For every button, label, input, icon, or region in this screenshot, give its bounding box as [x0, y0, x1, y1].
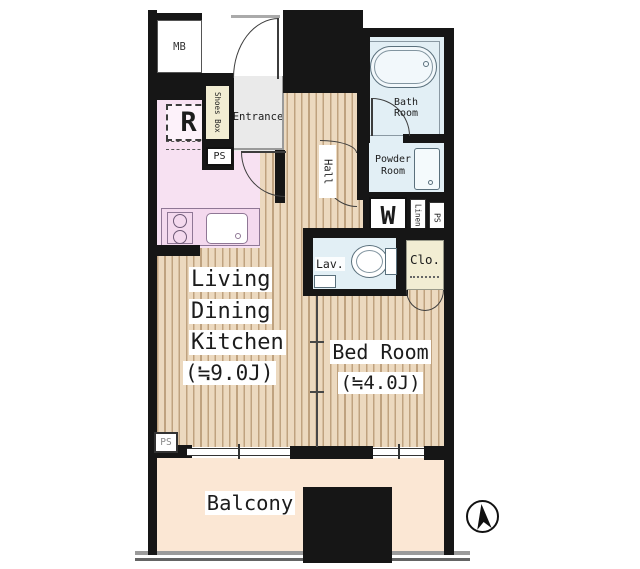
entrance-door-arc: [233, 18, 279, 78]
wall-kitchen-bottom: [148, 245, 200, 256]
refrigerator-label: R: [180, 107, 196, 138]
hall-label-box: Hall: [319, 145, 336, 198]
wall-hall-powder: [357, 138, 369, 200]
bedroom-size-label-box: (≒4.0J): [317, 371, 444, 395]
wall-right: [444, 28, 454, 555]
kitchen-sink: [206, 213, 248, 244]
bedroom-size-label: (≒4.0J): [338, 372, 422, 394]
meter-box: MB: [157, 20, 202, 73]
ps-powder-label: PS: [433, 213, 442, 223]
ps-entrance-label: PS: [213, 151, 225, 162]
lavatory-label-box: Lav.: [315, 253, 345, 272]
balcony-label: Balcony: [205, 491, 295, 515]
shoes-box: Shoes Box: [206, 86, 229, 139]
stove-burner-icon: [173, 230, 187, 244]
toilet-tank: [385, 248, 397, 275]
bath-door-leaf: [371, 98, 373, 136]
ldk-label-line3-box: Kitchen: [189, 330, 286, 355]
wall-bath-bottom: [403, 134, 454, 143]
bathtub-drain-icon: [423, 61, 429, 67]
closet-label-box: Clo.: [406, 252, 444, 266]
compass-needle-icon: [468, 502, 497, 533]
wall-bottom-right: [424, 446, 454, 460]
stove-burner-icon: [173, 214, 187, 228]
ldk-size-label: (≒9.0J): [183, 361, 276, 385]
wall-left: [148, 10, 157, 555]
bedroom-label-box: Bed Room: [317, 340, 444, 364]
lavatory-shelf: [314, 275, 336, 288]
meter-box-label: MB: [173, 41, 186, 53]
wall-bottom-center: [290, 446, 373, 459]
powder-room-label-1: Powder: [375, 154, 411, 166]
balcony-area: [157, 458, 444, 553]
wall-top: [148, 13, 202, 20]
ps-ldk-label: PS: [160, 437, 171, 448]
ldk-window-tick: [238, 444, 240, 459]
pipe-space-ldk: PS: [154, 432, 178, 453]
balcony-label-box: Balcony: [203, 491, 297, 515]
powder-sink-drain-icon: [428, 180, 433, 185]
ldk-label-line1: Living: [189, 267, 272, 292]
entrance-label-box: Entrance: [231, 110, 285, 124]
wall-below-meter-box: [157, 73, 203, 100]
wall-bath-left: [357, 28, 370, 143]
powder-room-sink: [414, 148, 440, 190]
exterior-notch: [202, 20, 233, 73]
powder-room-label-2: Room: [381, 166, 405, 178]
ldk-label-line2: Dining: [189, 299, 272, 324]
bedroom-window-tick: [398, 444, 400, 459]
structural-pillar-top: [283, 10, 363, 93]
closet-hanger-dots: [410, 276, 439, 279]
linen-label: Linen: [414, 204, 423, 227]
powder-room-label-box: Powder Room: [365, 152, 421, 180]
floor-plan: R Entrance Balcony Bath Room Powder Room…: [0, 0, 640, 569]
sink-drain-icon: [235, 233, 241, 239]
bedroom-label: Bed Room: [330, 340, 430, 364]
ldk-label-line2-box: Dining: [189, 299, 272, 324]
lavatory-label: Lav.: [315, 257, 345, 271]
ldk-size-label-box: (≒9.0J): [183, 361, 276, 385]
bath-room-label-1: Bath: [394, 97, 418, 109]
toilet-bowl-inner-line: [356, 250, 383, 273]
wall-bath-top: [357, 28, 454, 37]
ldk-label-line3: Kitchen: [189, 330, 286, 355]
hall-label: Hall: [322, 159, 334, 184]
balcony-pillar: [303, 487, 392, 563]
entrance-door-leaf: [277, 18, 279, 79]
washer-label: W: [380, 201, 395, 230]
pipe-space-entrance: PS: [206, 147, 233, 166]
bathtub-inner-line: [374, 50, 433, 84]
closet-label: Clo.: [410, 252, 440, 267]
entrance-label: Entrance: [233, 111, 284, 123]
shoes-box-label: Shoes Box: [213, 92, 222, 133]
ldk-door-leaf: [241, 151, 286, 153]
compass-icon: [466, 500, 499, 533]
ldk-label-line1-box: Living: [189, 267, 272, 292]
entrance-threshold-line: [231, 15, 280, 18]
